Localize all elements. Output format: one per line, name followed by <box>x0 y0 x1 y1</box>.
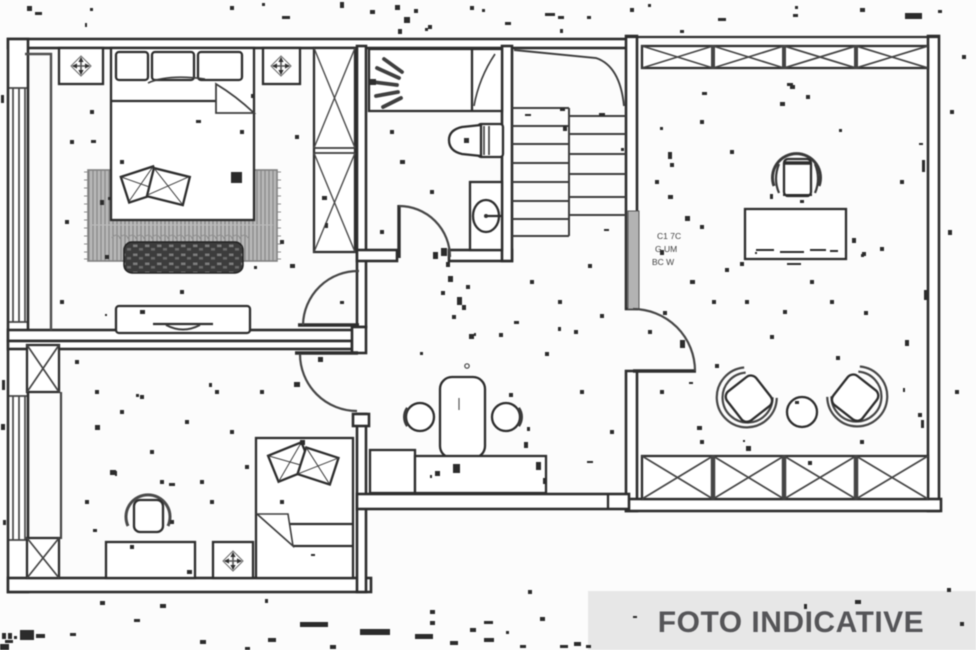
svg-text:C1 7C: C1 7C <box>657 231 681 241</box>
svg-text:BC W: BC W <box>652 257 674 267</box>
svg-text:G UM: G UM <box>655 244 677 254</box>
svg-text:FOTO INDICATIVE: FOTO INDICATIVE <box>658 606 924 639</box>
